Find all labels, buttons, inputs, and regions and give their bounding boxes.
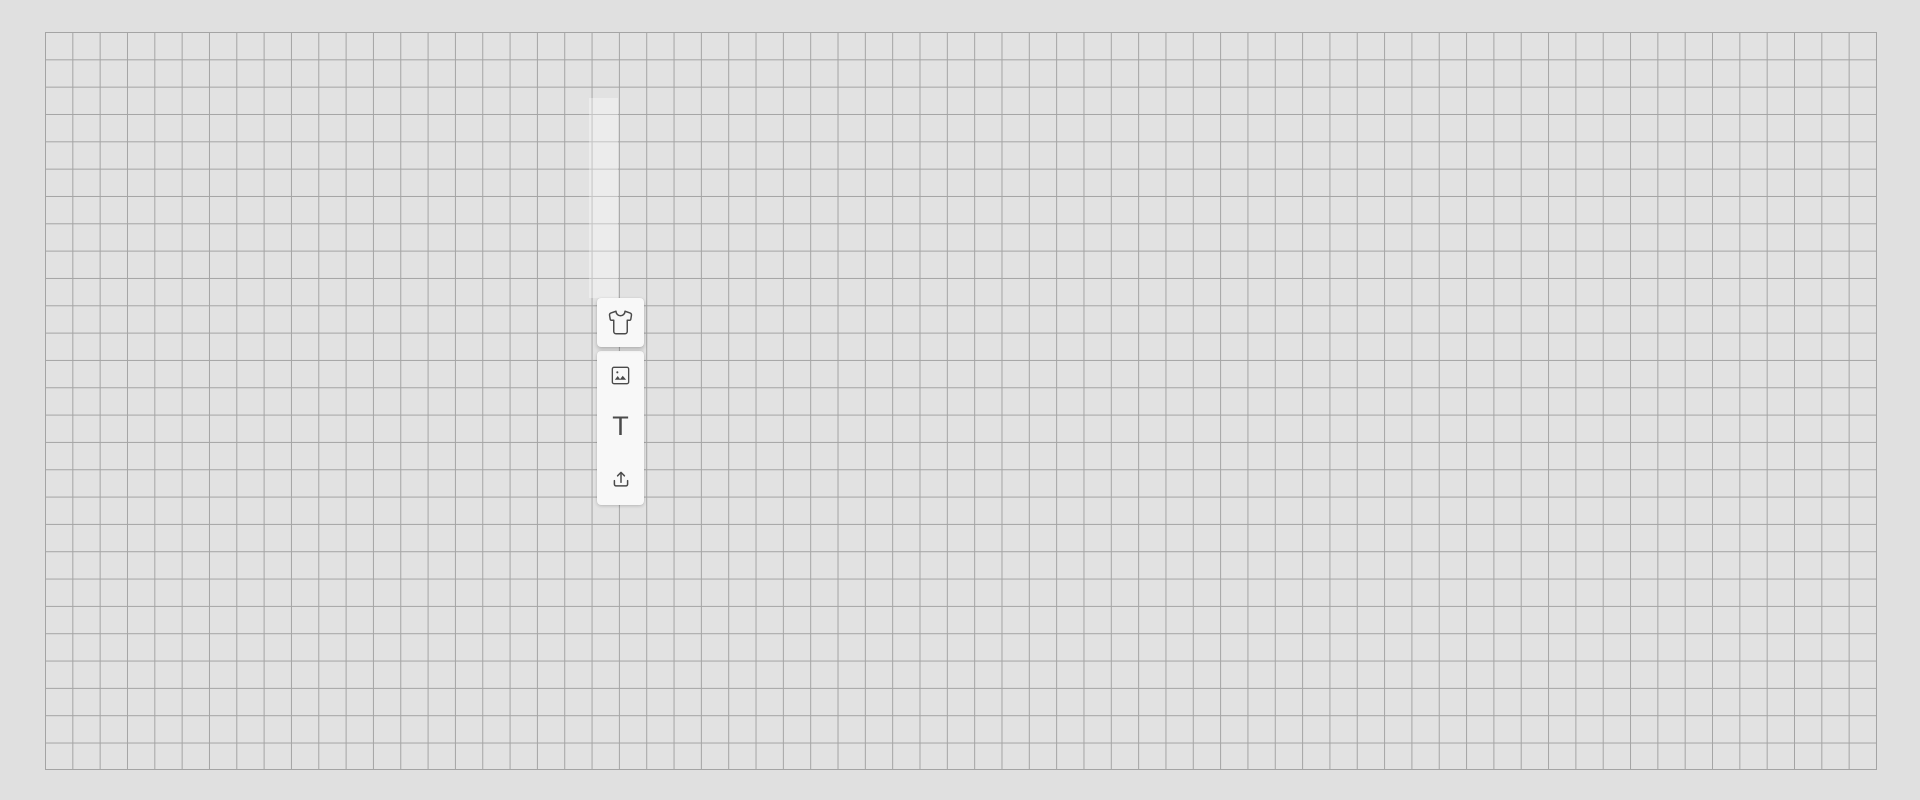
image-icon <box>609 364 632 387</box>
product-tool-button[interactable] <box>597 298 644 347</box>
product-tool-card <box>597 298 644 347</box>
upload-icon <box>609 468 633 492</box>
tshirt-icon <box>607 309 634 336</box>
design-editor-stage: T <box>0 0 1920 800</box>
design-toolbar: T <box>597 298 644 505</box>
image-tool-button[interactable] <box>597 351 644 401</box>
tool-group-card: T <box>597 351 644 505</box>
upload-tool-button[interactable] <box>597 454 644 505</box>
grid-canvas[interactable] <box>45 32 1877 770</box>
text-icon: T <box>612 413 629 440</box>
text-tool-button[interactable]: T <box>597 401 644 455</box>
